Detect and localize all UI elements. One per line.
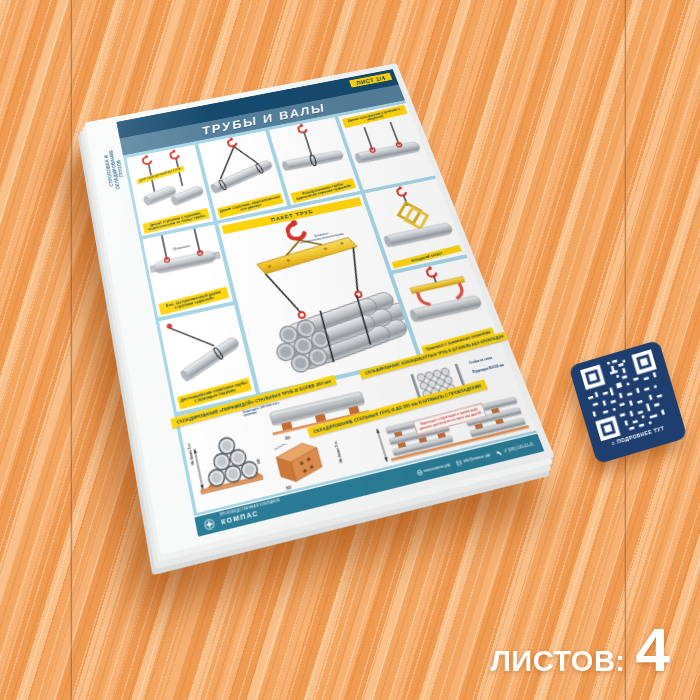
rigging-diagram	[159, 305, 251, 391]
email-contact: info@компас.рф	[455, 452, 491, 466]
sheets-count-value: 4	[636, 625, 670, 675]
globe-icon	[416, 469, 423, 476]
clamp-strap	[417, 291, 430, 307]
sheets-count-label: ЛИСТОВ:	[490, 645, 625, 678]
pipe-icon	[142, 185, 177, 207]
shaft-icon	[149, 249, 221, 275]
hook-icon	[285, 219, 306, 241]
hook-icon	[227, 137, 237, 147]
plank-seam	[70, 0, 73, 700]
hook-icon	[396, 186, 407, 197]
menu-icon: ≡	[611, 439, 616, 446]
phone-contact: +7 (495) 145-62-41	[496, 441, 535, 456]
compass-logo-icon	[203, 517, 215, 530]
pipe-icon	[354, 141, 421, 164]
traverse-beam	[410, 276, 465, 293]
phone-icon	[496, 449, 503, 456]
hook-icon	[142, 154, 152, 164]
sheet-number-badge: ЛИСТ 1/4	[349, 73, 392, 88]
pipe-icon	[170, 185, 205, 207]
poster-pad-scene: СТРОПОВКА И СКЛАДИРОВАНИЕ ГРУЗОВ ЛИСТ 1/…	[116, 48, 476, 498]
pipe-icon	[209, 159, 274, 195]
sling-ring-icon	[355, 291, 363, 298]
email-text: info@компас.рф	[463, 453, 492, 464]
phone-text: +7 (495) 145-62-41	[502, 442, 534, 454]
hook-icon	[169, 149, 179, 159]
clamp-strap	[451, 283, 465, 299]
hook-icon	[297, 123, 307, 133]
pipe-icon	[281, 149, 344, 171]
website-text: www.компас.рф	[423, 462, 451, 473]
sling-ring-icon	[298, 312, 306, 319]
website-contact: www.компас.рф	[416, 462, 451, 476]
mockup-scene: СТРОПОВКА И СКЛАДИРОВАНИЕ ГРУЗОВ ЛИСТ 1/…	[0, 0, 700, 700]
sheets-count: ЛИСТОВ: 4	[490, 625, 670, 678]
wedge-dim-a: 100	[257, 458, 263, 464]
hook-icon	[425, 266, 437, 278]
mail-icon	[455, 459, 462, 466]
pipe-icon	[179, 335, 241, 383]
